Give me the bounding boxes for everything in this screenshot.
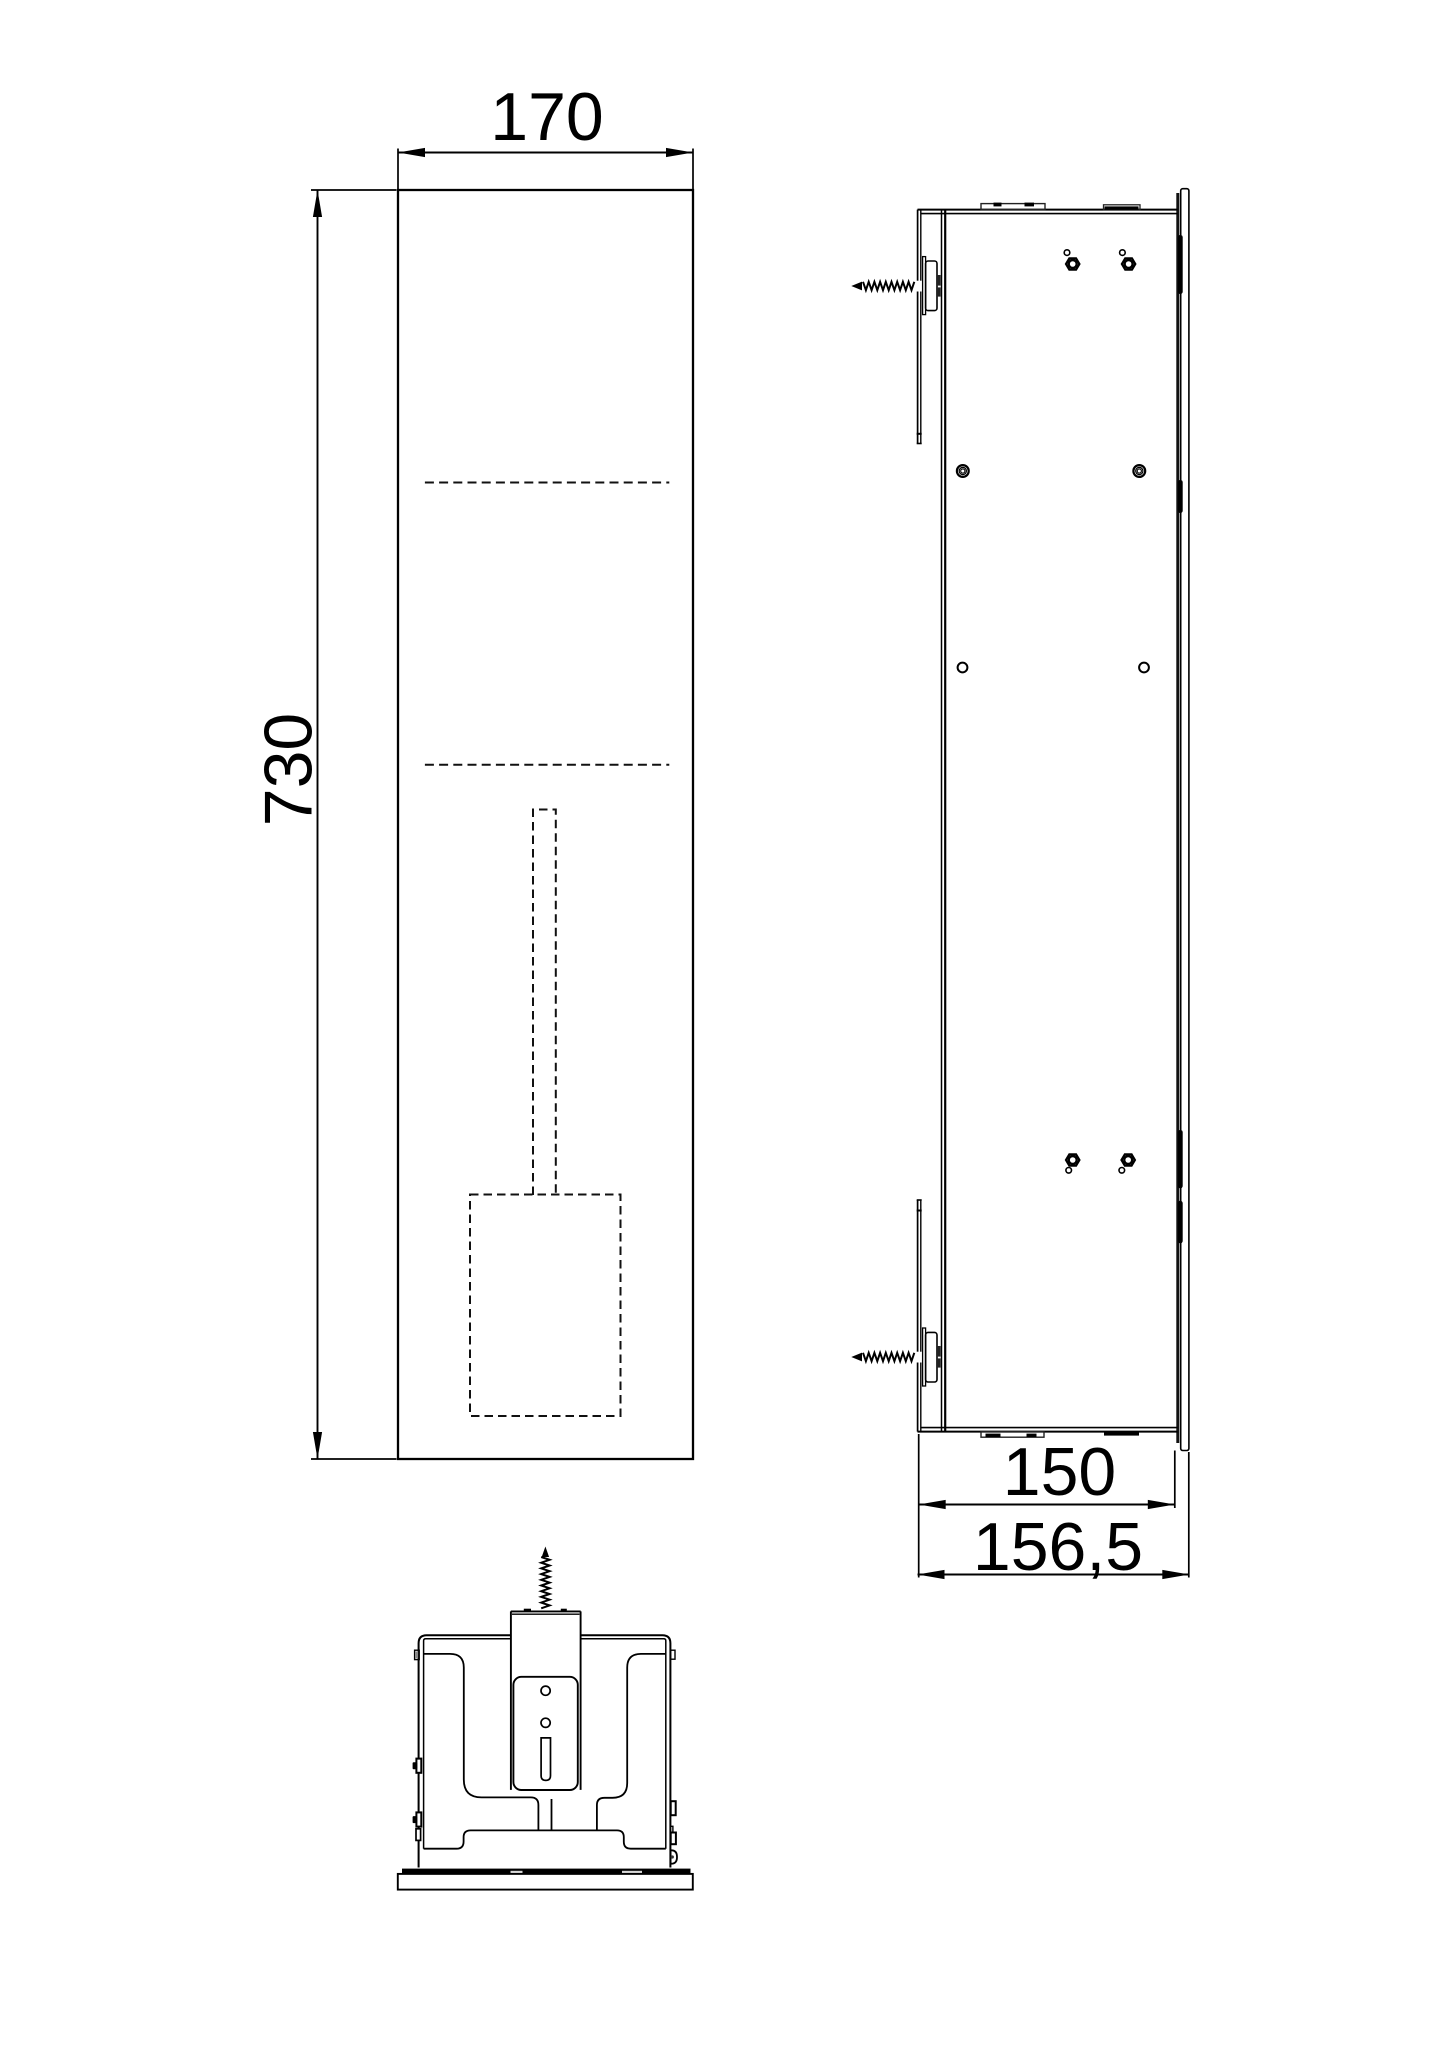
svg-text:150: 150: [1003, 1434, 1116, 1510]
svg-text:170: 170: [490, 79, 603, 155]
svg-text:730: 730: [251, 713, 327, 826]
